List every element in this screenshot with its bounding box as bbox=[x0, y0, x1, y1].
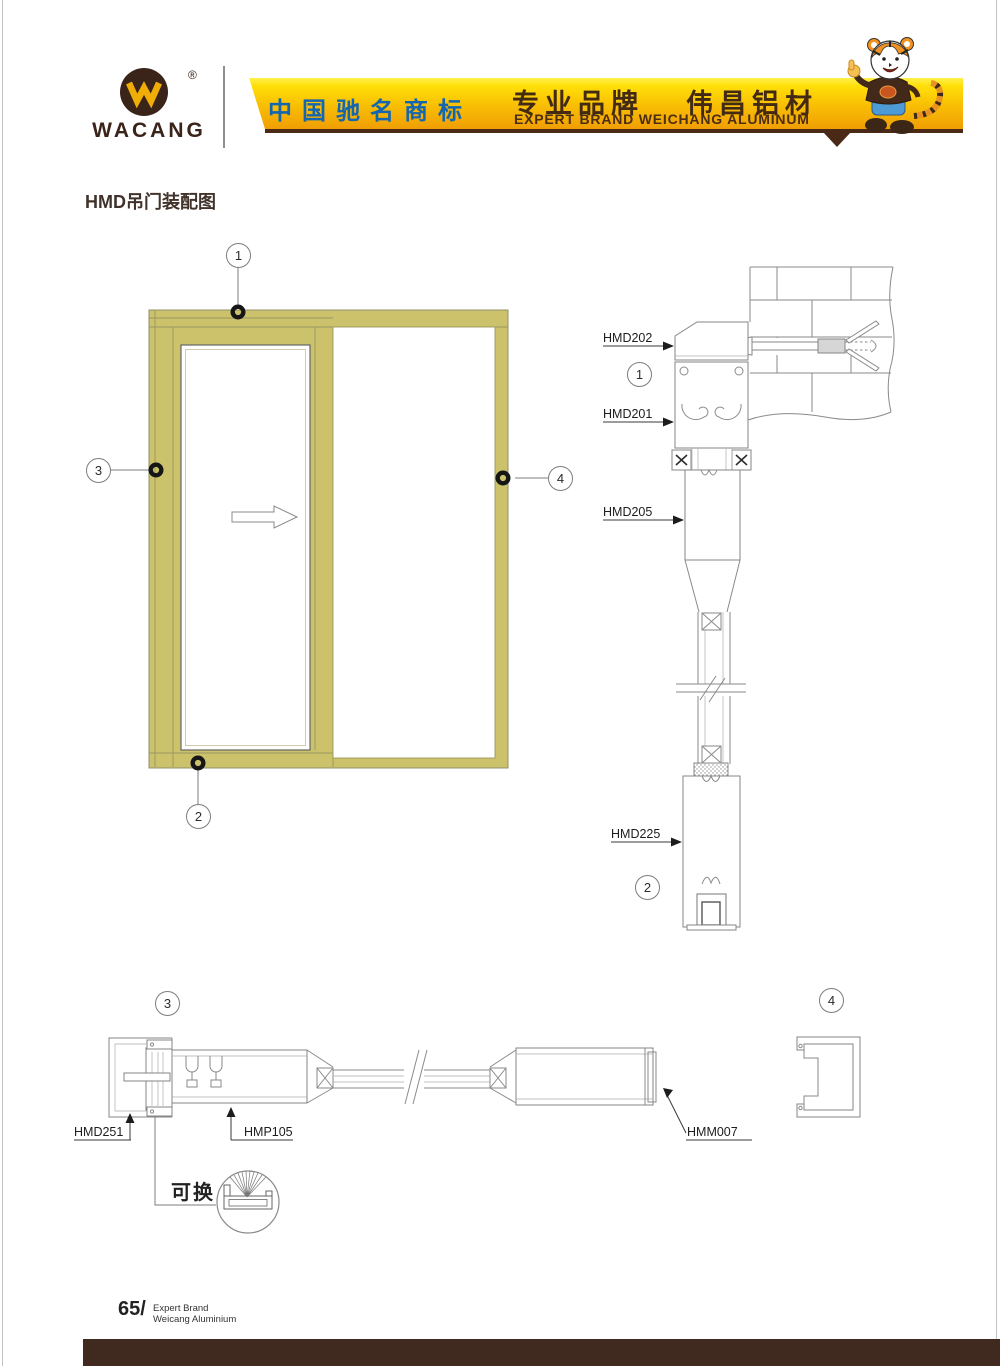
callout-4-elevation: 4 bbox=[548, 466, 573, 491]
footer-brand-text: Expert Brand Weicang Aluminium bbox=[153, 1303, 236, 1325]
label-hmd205: HMD205 bbox=[603, 505, 652, 519]
profile-hmd202 bbox=[675, 322, 748, 360]
plan-glass bbox=[317, 1050, 506, 1104]
label-hmd201: HMD201 bbox=[603, 407, 652, 421]
callout-1-section: 1 bbox=[627, 362, 652, 387]
label-hmd251: HMD251 bbox=[74, 1125, 123, 1139]
callout-3-elevation: 3 bbox=[86, 458, 111, 483]
callout-4-section: 4 bbox=[819, 988, 844, 1013]
footer-bar bbox=[83, 1339, 1000, 1366]
note-replaceable: 可换 bbox=[171, 1176, 215, 1205]
profile-right-stile bbox=[490, 1048, 656, 1105]
door-elevation bbox=[110, 267, 548, 804]
setting-gasket bbox=[694, 763, 728, 776]
callout-3-section: 3 bbox=[155, 991, 180, 1016]
label-hmd202: HMD202 bbox=[603, 331, 652, 345]
label-hmp105: HMP105 bbox=[244, 1125, 293, 1139]
footer-brand-line2: Weicang Aluminium bbox=[153, 1314, 236, 1325]
assembly-drawing bbox=[0, 0, 1000, 1366]
section-glass bbox=[676, 612, 746, 776]
footer-brand-line1: Expert Brand bbox=[153, 1303, 236, 1314]
roller bbox=[702, 902, 720, 925]
callout-1-elevation: 1 bbox=[226, 243, 251, 268]
profile-receiver-channel bbox=[797, 1037, 860, 1117]
profile-hmp105 bbox=[172, 1050, 333, 1103]
profile-hmd225 bbox=[683, 776, 740, 930]
door-glass bbox=[181, 345, 310, 750]
fixed-opening bbox=[333, 327, 495, 758]
callout-2-section: 2 bbox=[635, 875, 660, 900]
callout-2-elevation: 2 bbox=[186, 804, 211, 829]
catalog-page: ® WACANG 中国驰名商标 专业品牌伟昌铝材 EXPERT BRAND WE… bbox=[0, 0, 1000, 1366]
profile-hmd205 bbox=[685, 470, 740, 612]
profile-hmd201 bbox=[672, 362, 751, 470]
label-hmm007: HMM007 bbox=[687, 1125, 738, 1139]
page-number: 65/ bbox=[118, 1298, 146, 1321]
label-hmd225: HMD225 bbox=[611, 827, 660, 841]
